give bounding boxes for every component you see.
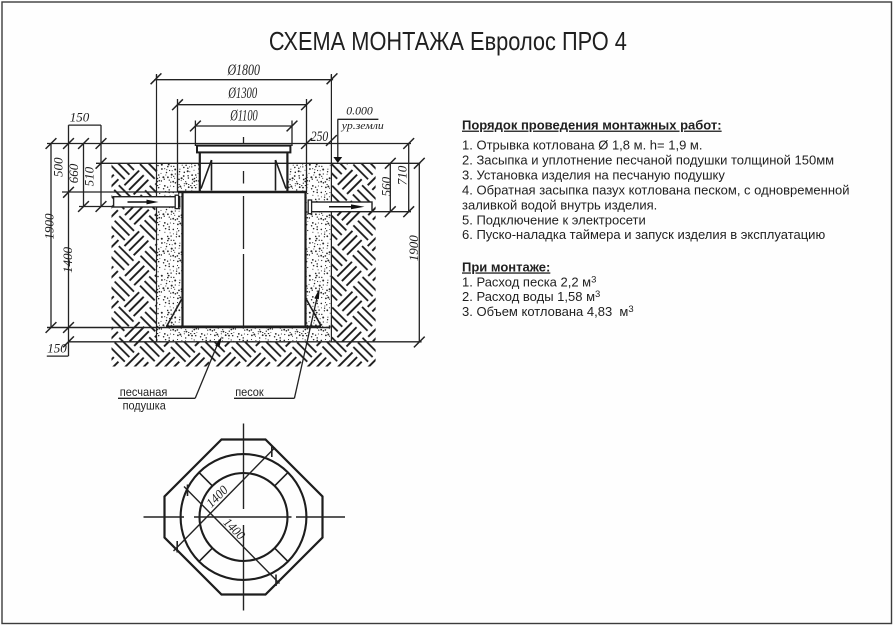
svg-text:5. Подключение к электросети: 5. Подключение к электросети [462, 212, 646, 227]
svg-text:4. Обратная засыпка пазух котл: 4. Обратная засыпка пазух котлована песк… [462, 182, 850, 197]
svg-text:660: 660 [66, 163, 81, 183]
svg-text:560: 560 [379, 176, 394, 196]
svg-text:1. Отрывка котлована Ø 1,8 м.: 1. Отрывка котлована Ø 1,8 м. h= 1,9 м. [462, 138, 702, 153]
svg-text:Ø1300: Ø1300 [228, 85, 258, 102]
svg-text:150: 150 [47, 340, 67, 355]
svg-text:1. Расход песка 2,2 м3: 1. Расход песка 2,2 м3 [462, 274, 596, 289]
svg-text:Ø1100: Ø1100 [230, 107, 258, 124]
svg-text:ур.земли: ур.земли [341, 120, 385, 132]
svg-text:При монтаже:: При монтаже: [462, 259, 550, 274]
svg-text:250: 250 [311, 129, 329, 145]
svg-text:6. Пуско-наладка таймера и зап: 6. Пуско-наладка таймера и запуск издели… [462, 227, 825, 242]
svg-text:СХЕМА МОНТАЖА Евролос ПРО 4: СХЕМА МОНТАЖА Евролос ПРО 4 [269, 28, 627, 56]
svg-text:песок: песок [235, 385, 264, 399]
svg-text:1900: 1900 [41, 213, 56, 240]
svg-text:150: 150 [70, 109, 90, 124]
svg-text:710: 710 [394, 165, 409, 185]
svg-text:1900: 1900 [406, 235, 421, 261]
svg-text:510: 510 [81, 166, 96, 186]
svg-text:500: 500 [50, 157, 65, 177]
svg-text:Ø1800: Ø1800 [227, 62, 260, 79]
svg-text:2. Расход воды 1,58 м3: 2. Расход воды 1,58 м3 [462, 289, 600, 304]
svg-text:0.000: 0.000 [346, 104, 373, 118]
svg-text:Порядок проведения монтажных р: Порядок проведения монтажных работ: [462, 118, 722, 133]
svg-text:3. Объем котлована 4,83 м3: 3. Объем котлована 4,83 м3 [462, 304, 634, 319]
svg-text:подушка: подушка [123, 399, 166, 413]
svg-text:заливкой водой внутрь изделия.: заливкой водой внутрь изделия. [462, 197, 657, 212]
svg-text:2. Засыпка и уплотнение песчан: 2. Засыпка и уплотнение песчаной подушки… [462, 153, 834, 168]
svg-text:1400: 1400 [60, 247, 75, 274]
svg-text:песчаная: песчаная [120, 385, 168, 399]
svg-text:3. Установка изделия на песчан: 3. Установка изделия на песчаную подушку [462, 167, 725, 182]
